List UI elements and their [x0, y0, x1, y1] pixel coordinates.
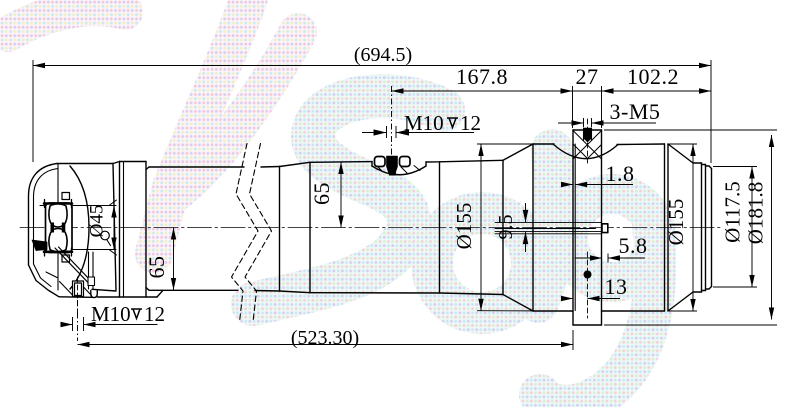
svg-text:65: 65: [309, 182, 334, 205]
svg-text:Ø117.5: Ø117.5: [721, 181, 745, 243]
svg-text:(523.30): (523.30): [291, 327, 359, 349]
svg-text:Ø181.8: Ø181.8: [744, 182, 768, 244]
svg-text:102.2: 102.2: [627, 64, 679, 89]
svg-text:Ø155: Ø155: [452, 203, 476, 250]
svg-text:5.8: 5.8: [619, 233, 648, 258]
svg-text:167.8: 167.8: [456, 64, 508, 89]
svg-text:12: 12: [460, 111, 481, 135]
svg-text:1.8: 1.8: [606, 161, 635, 186]
svg-text:M10: M10: [91, 302, 131, 326]
svg-text:13: 13: [605, 274, 628, 299]
svg-text:Ø45: Ø45: [87, 205, 108, 238]
svg-text:Ø155: Ø155: [664, 199, 688, 246]
svg-text:12: 12: [144, 302, 165, 326]
svg-text:65: 65: [144, 256, 169, 279]
svg-text:27: 27: [576, 64, 599, 89]
svg-text:(694.5): (694.5): [354, 44, 412, 66]
svg-text:M10: M10: [404, 111, 444, 135]
svg-text:9.5: 9.5: [495, 215, 517, 240]
svg-text:3-M5: 3-M5: [610, 99, 661, 124]
